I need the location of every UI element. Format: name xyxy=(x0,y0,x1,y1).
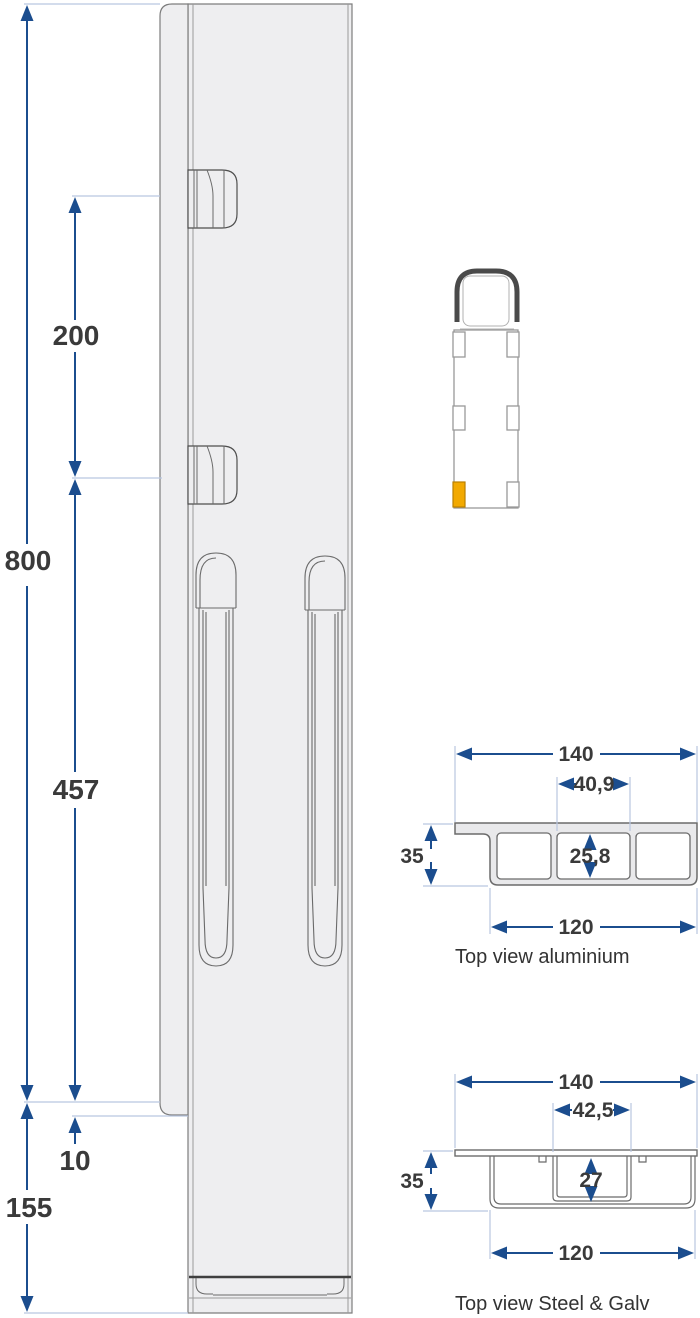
truck-pocket-top-right xyxy=(507,332,519,357)
dim-label-steel-35: 35 xyxy=(400,1170,424,1193)
steel-profile-section xyxy=(455,1150,697,1208)
truck-pocket-bottom-right xyxy=(507,482,519,507)
dim-label-steel-140: 140 xyxy=(558,1071,593,1094)
steel-notch-left xyxy=(539,1156,546,1162)
dim-label-steel-42-5: 42,5 xyxy=(573,1099,614,1122)
steel-section-title: Top view Steel & Galv xyxy=(455,1293,650,1315)
latch-pocket-2 xyxy=(188,446,237,504)
dim-label-800: 800 xyxy=(5,545,52,576)
truck-top-view xyxy=(453,271,519,508)
dimension-steel-35 xyxy=(425,1152,438,1210)
steel-top-plate xyxy=(455,1150,697,1156)
truck-cab-roof xyxy=(463,276,509,326)
latch-pocket-1 xyxy=(188,170,237,228)
dim-label-steel-27: 27 xyxy=(579,1169,602,1192)
steel-notch-right xyxy=(639,1156,646,1162)
dim-label-200: 200 xyxy=(53,320,100,351)
drawing-canvas: 800 200 457 10 155 140 40,9 35 25,8 120 … xyxy=(0,0,700,1318)
dim-label-457: 457 xyxy=(53,774,100,805)
aluminium-chamber-right xyxy=(636,833,690,879)
aluminium-section-title: Top view aluminium xyxy=(455,946,630,968)
aluminium-chamber-left xyxy=(497,833,551,879)
dim-label-alu-120: 120 xyxy=(558,916,593,939)
dim-label-155: 155 xyxy=(6,1192,53,1223)
truck-cab xyxy=(457,271,517,329)
post-position-marker xyxy=(453,482,465,507)
truck-pocket-mid-left xyxy=(453,406,465,430)
technical-drawing-page: 800 200 457 10 155 140 40,9 35 25,8 120 … xyxy=(0,0,700,1318)
dim-label-alu-140: 140 xyxy=(558,743,593,766)
post-face-plate xyxy=(160,4,188,1115)
dim-label-alu-25-8: 25,8 xyxy=(570,845,611,868)
truck-pocket-top-left xyxy=(453,332,465,357)
post-side-view xyxy=(160,4,352,1313)
dimension-alu-35 xyxy=(425,825,438,885)
dimension-10 xyxy=(69,1117,82,1144)
dim-label-10: 10 xyxy=(59,1145,90,1176)
truck-pocket-mid-right xyxy=(507,406,519,430)
dim-label-alu-40-9: 40,9 xyxy=(574,773,615,796)
dim-label-steel-120: 120 xyxy=(558,1242,593,1265)
dim-label-alu-35: 35 xyxy=(400,845,424,868)
